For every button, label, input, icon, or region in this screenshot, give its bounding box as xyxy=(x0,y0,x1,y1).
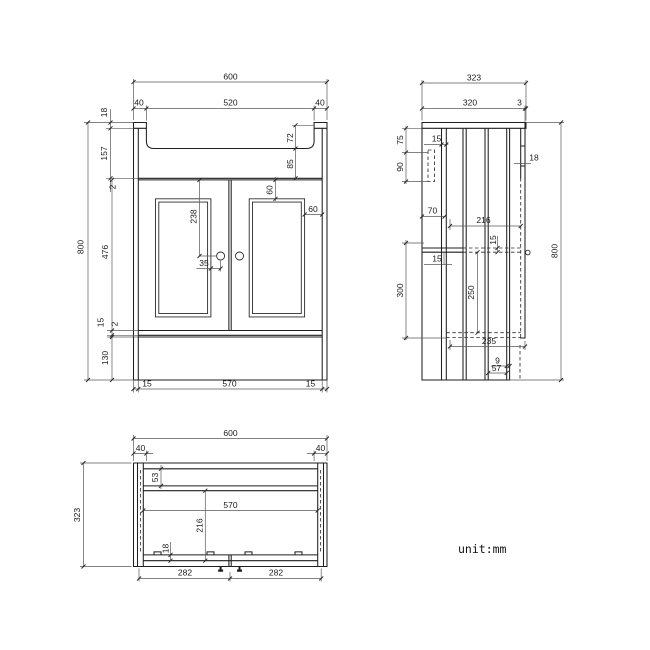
dim-top-back-clearance: 53 xyxy=(150,473,160,483)
dim-front-tab-right: 40 xyxy=(315,98,325,108)
dim-front-door-height: 476 xyxy=(100,245,110,259)
vanity-unit-drawing: 600 40 520 40 18 157 2 800 72 85 476 60 … xyxy=(0,0,650,650)
front-view-outline xyxy=(134,123,328,381)
dim-front-basin-opening: 520 xyxy=(223,98,237,108)
dim-side-bracket-height: 90 xyxy=(395,162,405,172)
top-hidden-lines xyxy=(140,470,320,554)
dim-front-knob-offset: 35 xyxy=(199,258,209,268)
dim-side-interior-height: 250 xyxy=(466,285,476,299)
dim-side-back-clearance: 70 xyxy=(428,206,438,216)
dim-side-back-panel: 15 xyxy=(432,134,442,144)
dim-front-basin-to-body: 85 xyxy=(285,159,295,169)
dim-front-knob-drop: 238 xyxy=(189,209,199,223)
dim-front-basin-depth: 72 xyxy=(285,133,295,143)
dim-front-top-rail: 18 xyxy=(99,108,109,118)
dim-top-inner-width: 570 xyxy=(223,500,237,510)
dim-side-overall-height: 800 xyxy=(550,244,560,258)
dim-front-panel-top-inset: 60 xyxy=(265,185,275,195)
dim-top-front-rail: 18 xyxy=(161,544,171,554)
dim-side-top-depth: 320 xyxy=(463,98,477,108)
side-dimension-lines xyxy=(402,80,564,380)
dim-top-overall-width: 600 xyxy=(223,428,237,438)
dim-side-interior-depth: 216 xyxy=(476,215,490,225)
top-door-knobs xyxy=(218,567,242,572)
dim-front-base-side-right: 15 xyxy=(306,379,316,389)
dim-top-interior-depth: 216 xyxy=(195,518,205,532)
side-door-knob xyxy=(526,250,531,255)
dim-front-bottom-rail: 15 xyxy=(96,318,106,328)
side-view: 323 320 3 800 75 90 15 18 70 216 15 15 3… xyxy=(395,73,564,383)
dim-side-lower-section: 300 xyxy=(395,283,405,297)
dim-side-bracket-offset: 75 xyxy=(395,135,405,145)
technical-drawing-canvas: 600 40 520 40 18 157 2 800 72 85 476 60 … xyxy=(0,0,650,650)
dim-side-shelf-thickness: 15 xyxy=(488,235,498,245)
dim-front-overall-width: 600 xyxy=(223,72,237,82)
top-view: 600 40 40 323 53 570 216 18 282 282 xyxy=(72,428,329,582)
door-knob-right xyxy=(236,252,244,260)
dim-top-overall-depth: 323 xyxy=(72,508,82,522)
dim-front-plinth-height: 130 xyxy=(100,351,110,365)
front-dimension-lines xyxy=(84,79,327,393)
side-view-outline xyxy=(422,123,526,381)
dim-side-leg-depth: 57 xyxy=(492,363,502,373)
dim-side-rail-thickness: 15 xyxy=(432,254,442,264)
dim-top-door-left: 282 xyxy=(178,568,192,578)
dim-top-tab-right: 40 xyxy=(316,443,326,453)
front-view: 600 40 520 40 18 157 2 800 72 85 476 60 … xyxy=(76,72,330,393)
dim-front-base-width: 570 xyxy=(222,379,236,389)
dim-side-bottom-depth: 235 xyxy=(482,336,496,346)
dim-front-upper-section: 157 xyxy=(99,146,109,160)
door-knob-left xyxy=(217,252,225,260)
dim-front-top-gap: 2 xyxy=(108,184,118,189)
door-panels xyxy=(156,199,305,317)
dim-front-tab-left: 40 xyxy=(134,98,144,108)
dim-front-base-side-left: 15 xyxy=(142,379,152,389)
dim-front-overall-height: 800 xyxy=(76,240,86,254)
dim-top-tab-left: 40 xyxy=(136,443,146,453)
dim-front-bottom-gap: 2 xyxy=(110,321,120,326)
dim-side-front-lip: 3 xyxy=(517,98,522,108)
dim-top-door-right: 282 xyxy=(269,568,283,578)
dim-side-overall-depth: 323 xyxy=(467,73,481,83)
top-dimension-lines xyxy=(80,435,327,582)
dim-front-panel-side-inset: 60 xyxy=(308,204,318,214)
dim-side-door-thickness: 18 xyxy=(529,153,539,163)
unit-label: unit:mm xyxy=(458,542,507,556)
